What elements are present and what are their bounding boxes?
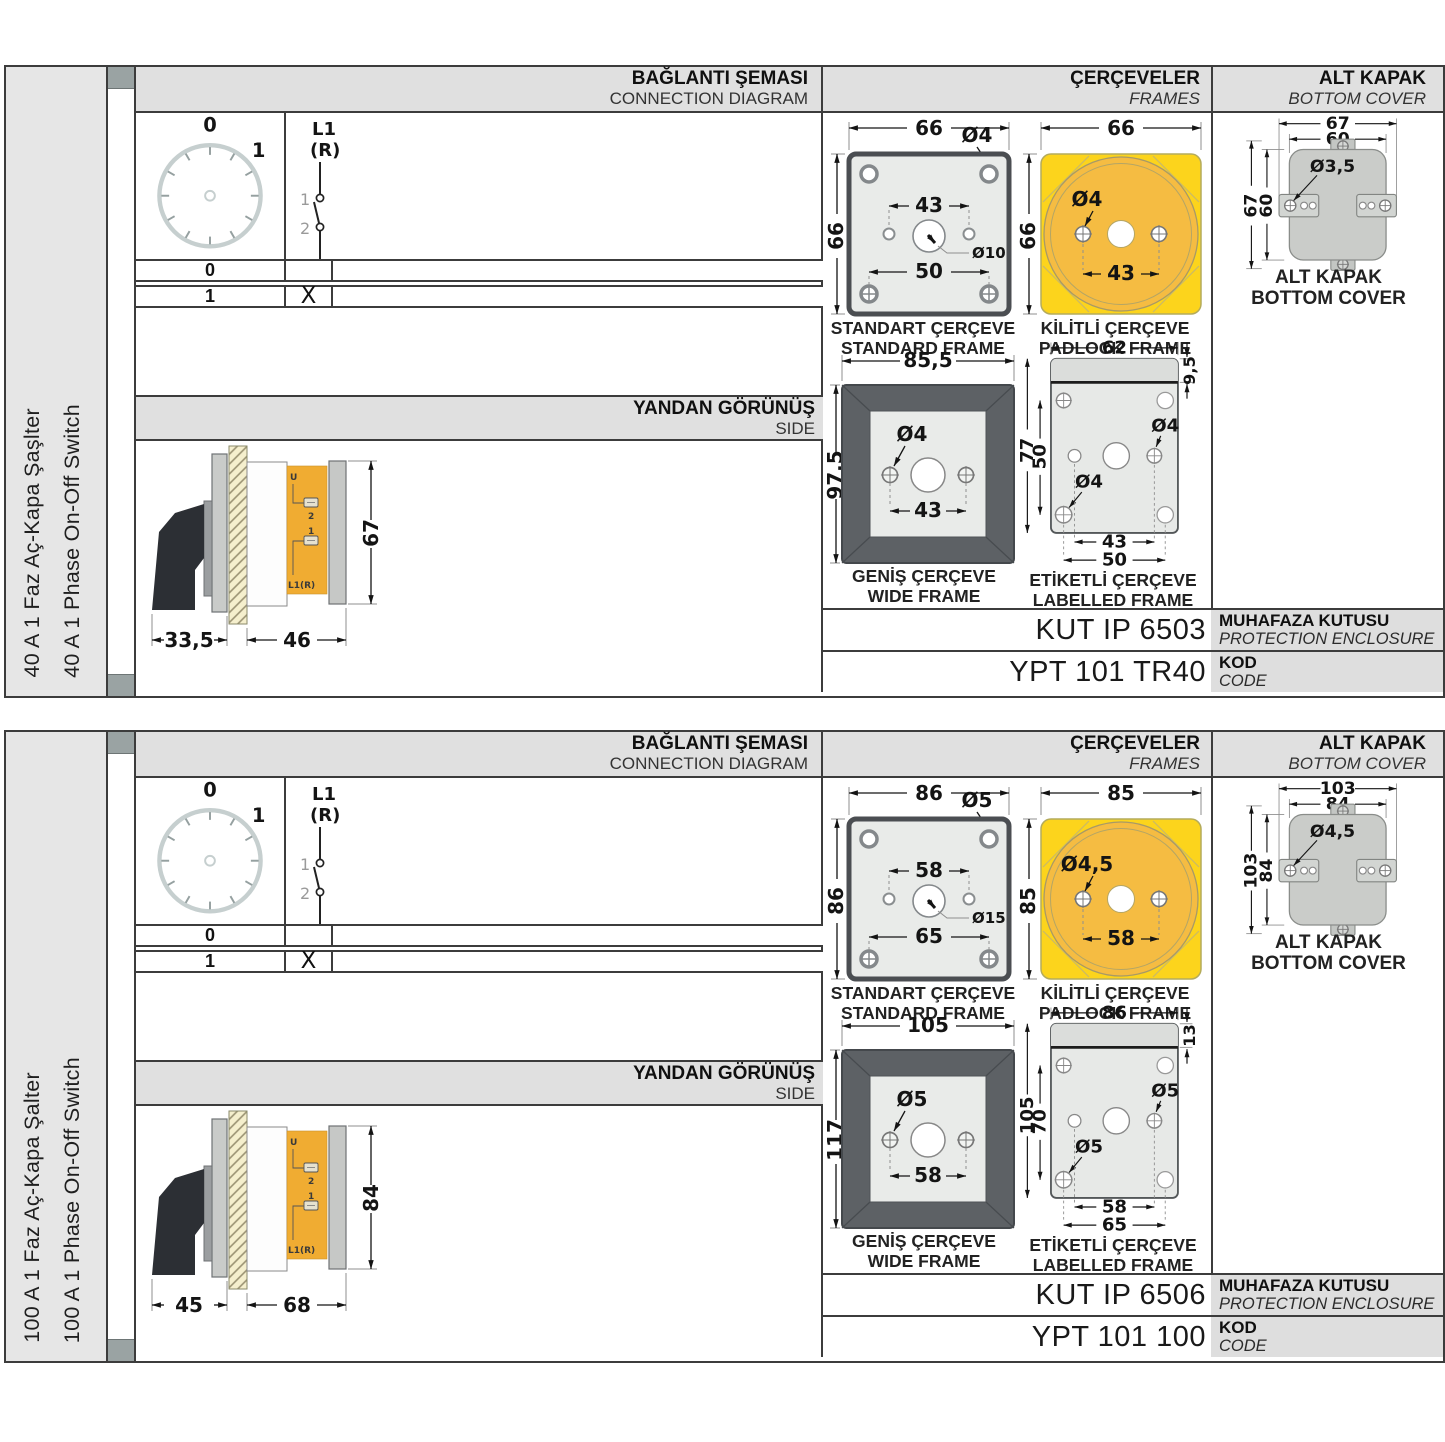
label-u: U bbox=[290, 1138, 297, 1148]
enclosure-code: KUT IP 6506 bbox=[823, 1273, 1211, 1315]
end-cap bbox=[329, 461, 346, 604]
bottom-cover-caption: ALT KAPAK BOTTOM COVER bbox=[1216, 267, 1441, 310]
header-connection-diagram-en: CONNECTION DIAGRAM bbox=[136, 755, 808, 774]
switch-dial-cell: 0 1 bbox=[136, 778, 286, 924]
terminal-r-label: (R) bbox=[310, 140, 340, 161]
dim-hole-right: Ø4 bbox=[1151, 415, 1179, 436]
product-label-strip: 100 A 1 Faz Aç-Kapa Şalter 100 A 1 Phase… bbox=[6, 732, 106, 1361]
side-view-title-en: SIDE bbox=[136, 1085, 815, 1104]
terminal-l1-label: L1 bbox=[312, 119, 336, 140]
product-name-turkish: 100 A 1 Faz Aç-Kapa Şalter bbox=[20, 1072, 45, 1343]
dial-position-1: 1 bbox=[252, 139, 266, 162]
dim-width: 85,5 bbox=[903, 349, 952, 372]
side-view-title-tr: YANDAN GÖRÜNÜŞ bbox=[136, 399, 815, 420]
dim-screw-pitch: 50 bbox=[1102, 550, 1127, 571]
header-connection-diagram: BAĞLANTI ŞEMASI CONNECTION DIAGRAM bbox=[136, 69, 816, 109]
dim-screw-pitch: 50 bbox=[915, 259, 943, 283]
position-cell: 1 bbox=[136, 952, 284, 971]
front-plate bbox=[212, 454, 227, 612]
dim-hole: Ø5 bbox=[897, 1087, 928, 1111]
switch-body bbox=[247, 1127, 287, 1271]
dim-body-depth: 46 bbox=[283, 628, 311, 652]
enclosure-label: MUHAFAZA KUTUSU PROTECTION ENCLOSURE bbox=[1211, 1273, 1443, 1315]
binding-gap-column bbox=[106, 732, 136, 1361]
registration-mark-bottom bbox=[108, 674, 134, 696]
dim-hole: Ø3,5 bbox=[1310, 157, 1355, 177]
dim-height: 85 bbox=[1019, 887, 1040, 915]
label-2: 2 bbox=[308, 1177, 314, 1187]
product-name-turkish: 40 A 1 Faz Aç-Kapa Şaşlter bbox=[20, 408, 45, 678]
switch-schematic: L1 (R) 1 2 U bbox=[290, 115, 380, 283]
dim-inner-height: 50 bbox=[1030, 444, 1051, 469]
label-2: 2 bbox=[308, 512, 314, 522]
dim-width: 62 bbox=[1102, 337, 1127, 358]
header-frames-tr: ÇERÇEVELER bbox=[826, 734, 1200, 755]
terminal-r-label: (R) bbox=[310, 805, 340, 826]
dim-hole: Ø4 bbox=[962, 123, 993, 147]
switch-handle bbox=[152, 1169, 204, 1275]
bottom-cover-caption: ALT KAPAK BOTTOM COVER bbox=[1216, 932, 1441, 975]
divider-cover bbox=[1211, 732, 1213, 1357]
switch-dial-drawing: 0 1 bbox=[138, 114, 282, 258]
header-bottom-cover-tr: ALT KAPAK bbox=[1216, 69, 1426, 90]
handle-hub bbox=[204, 1166, 212, 1261]
switch-body bbox=[247, 462, 287, 606]
dim-inner-height: 60 bbox=[1257, 194, 1277, 218]
label-l1r: L1(R) bbox=[288, 1246, 315, 1256]
position-cell: 1 bbox=[136, 287, 284, 306]
dim-hole-left: Ø5 bbox=[1075, 1137, 1103, 1158]
labelled-frame-caption: ETİKETLİ ÇERÇEVE LABELLED FRAME bbox=[1018, 571, 1208, 610]
enclosure-code: KUT IP 6503 bbox=[823, 608, 1211, 650]
dim-hole-pitch: 58 bbox=[1107, 926, 1135, 950]
product-panel: 40 A 1 Faz Aç-Kapa Şaşlter 40 A 1 Phase … bbox=[4, 65, 1445, 698]
contact-1-label: 1 bbox=[300, 190, 310, 209]
dim-hole: Ø4,5 bbox=[1061, 852, 1113, 876]
padlock-frame-drawing: 66 66 Ø4 43 bbox=[1019, 114, 1211, 322]
dim-width: 105 bbox=[907, 1014, 949, 1037]
table-row: 1 X bbox=[136, 285, 823, 308]
product-name-english: 100 A 1 Phase On-Off Switch bbox=[60, 1057, 85, 1343]
dim-screw-pitch: 65 bbox=[1102, 1215, 1127, 1236]
dim-screw-pitch: 65 bbox=[915, 924, 943, 948]
wide-frame-caption: GENİŞ ÇERÇEVE WIDE FRAME bbox=[826, 567, 1022, 606]
section-header-band: BAĞLANTI ŞEMASI CONNECTION DIAGRAM ÇERÇE… bbox=[136, 67, 1443, 113]
end-cap bbox=[329, 1126, 346, 1269]
dim-center-hole: Ø15 bbox=[972, 909, 1006, 927]
handle-hub bbox=[204, 501, 212, 596]
header-bottom-cover-en: BOTTOM COVER bbox=[1216, 90, 1426, 109]
dim-center-hole: Ø10 bbox=[972, 244, 1006, 262]
dim-width: 86 bbox=[915, 781, 943, 805]
dim-height: 66 bbox=[1019, 222, 1040, 250]
state-cell bbox=[284, 259, 333, 282]
label-strip bbox=[1051, 359, 1178, 383]
dim-hole: Ø5 bbox=[962, 788, 993, 812]
header-frames-en: FRAMES bbox=[826, 755, 1200, 774]
label-l1r: L1(R) bbox=[288, 581, 315, 591]
position-cell: 0 bbox=[136, 261, 284, 280]
contact-2-label: 2 bbox=[300, 219, 310, 238]
header-bottom-cover: ALT KAPAK BOTTOM COVER bbox=[1216, 734, 1434, 774]
dial-position-0: 0 bbox=[203, 779, 217, 802]
side-view-drawing: U 2 1 L1(R) 45 68 84 bbox=[149, 1109, 401, 1327]
dial-position-1: 1 bbox=[252, 804, 266, 827]
dim-hole-left: Ø4 bbox=[1075, 472, 1103, 493]
standard-frame-drawing: 86 Ø5 86 58 Ø15 65 bbox=[827, 779, 1019, 987]
header-frames: ÇERÇEVELER FRAMES bbox=[826, 69, 1208, 109]
dim-hole-pitch: 43 bbox=[915, 193, 943, 217]
product-code: YPT 101 TR40 bbox=[823, 650, 1211, 692]
header-connection-diagram: BAĞLANTI ŞEMASI CONNECTION DIAGRAM bbox=[136, 734, 816, 774]
dim-hole-pitch: 58 bbox=[915, 858, 943, 882]
dim-hole-right: Ø5 bbox=[1151, 1080, 1179, 1101]
dim-hole-pitch: 58 bbox=[914, 1163, 942, 1187]
divider-frames bbox=[821, 67, 823, 692]
switch-handle bbox=[152, 504, 204, 610]
table-row: 1 X bbox=[136, 950, 823, 973]
divider-cover bbox=[1211, 67, 1213, 692]
binding-gap-column bbox=[106, 67, 136, 696]
dim-hole: Ø4,5 bbox=[1310, 822, 1355, 842]
dim-body-depth: 68 bbox=[283, 1293, 311, 1317]
registration-mark-bottom bbox=[108, 1339, 134, 1361]
labelled-frame-drawing: 62 9,5 77 50 Ø4 Ø4 43 bbox=[1018, 337, 1200, 571]
header-connection-diagram-en: CONNECTION DIAGRAM bbox=[136, 90, 808, 109]
label-1: 1 bbox=[308, 527, 314, 537]
table-row: 0 bbox=[136, 924, 823, 947]
header-connection-diagram-tr: BAĞLANTI ŞEMASI bbox=[136, 734, 808, 755]
header-frames: ÇERÇEVELER FRAMES bbox=[826, 734, 1208, 774]
standard-frame-drawing: 66 Ø4 66 43 Ø10 50 bbox=[827, 114, 1019, 322]
code-label: KOD CODE bbox=[1211, 1315, 1443, 1357]
dim-width: 66 bbox=[1107, 116, 1135, 140]
side-view-drawing: U 2 1 L1(R) 33,5 46 67 bbox=[149, 444, 401, 662]
dim-inner-height: 70 bbox=[1030, 1109, 1051, 1134]
catalog-page: 40 A 1 Faz Aç-Kapa Şaşlter 40 A 1 Phase … bbox=[0, 0, 1445, 1442]
divider-frames bbox=[821, 732, 823, 1357]
mounting-panel-hatch bbox=[229, 1111, 247, 1289]
dial-position-0: 0 bbox=[203, 114, 217, 137]
dim-width: 66 bbox=[915, 116, 943, 140]
side-view-header: YANDAN GÖRÜNÜŞ SIDE bbox=[136, 395, 823, 441]
switch-schematic: L1 (R) 1 2 U bbox=[290, 780, 380, 948]
product-panel: 100 A 1 Faz Aç-Kapa Şalter 100 A 1 Phase… bbox=[4, 730, 1445, 1363]
state-cell bbox=[284, 924, 333, 947]
dim-hole-pitch: 43 bbox=[914, 498, 942, 522]
product-code: YPT 101 100 bbox=[823, 1315, 1211, 1357]
dim-hole: Ø4 bbox=[1072, 187, 1103, 211]
wide-frame-caption: GENİŞ ÇERÇEVE WIDE FRAME bbox=[826, 1232, 1022, 1271]
dim-height: 86 bbox=[827, 887, 848, 915]
product-label-strip: 40 A 1 Faz Aç-Kapa Şaşlter 40 A 1 Phase … bbox=[6, 67, 106, 696]
label-u: U bbox=[290, 473, 297, 483]
front-plate bbox=[212, 1119, 227, 1277]
dim-strip-height: 13 bbox=[1180, 1024, 1199, 1047]
side-view-title-tr: YANDAN GÖRÜNÜŞ bbox=[136, 1064, 815, 1085]
section-header-band: BAĞLANTI ŞEMASI CONNECTION DIAGRAM ÇERÇE… bbox=[136, 732, 1443, 778]
header-bottom-cover-en: BOTTOM COVER bbox=[1216, 755, 1426, 774]
dim-strip-height: 9,5 bbox=[1180, 356, 1199, 385]
table-row: 0 bbox=[136, 259, 823, 282]
dim-handle-depth: 33,5 bbox=[164, 628, 213, 652]
dim-body-height: 84 bbox=[359, 1184, 383, 1212]
switch-dial-drawing: 0 1 bbox=[138, 779, 282, 923]
header-bottom-cover-tr: ALT KAPAK bbox=[1216, 734, 1426, 755]
registration-mark-top bbox=[108, 732, 134, 754]
product-name-english: 40 A 1 Phase On-Off Switch bbox=[60, 404, 85, 678]
state-cell: X bbox=[284, 950, 333, 973]
dim-handle-depth: 45 bbox=[175, 1293, 203, 1317]
side-view-header: YANDAN GÖRÜNÜŞ SIDE bbox=[136, 1060, 823, 1106]
contact-2-label: 2 bbox=[300, 884, 310, 903]
header-frames-tr: ÇERÇEVELER bbox=[826, 69, 1200, 90]
label-strip bbox=[1051, 1024, 1178, 1048]
wide-frame-drawing: 105 117 Ø5 58 bbox=[826, 1014, 1022, 1232]
header-frames-en: FRAMES bbox=[826, 90, 1200, 109]
position-cell: 0 bbox=[136, 926, 284, 945]
header-connection-diagram-tr: BAĞLANTI ŞEMASI bbox=[136, 69, 808, 90]
dim-hole: Ø4 bbox=[897, 422, 928, 446]
switch-dial-cell: 0 1 bbox=[136, 113, 286, 259]
wide-frame-drawing: 85,5 97,5 Ø4 43 bbox=[826, 349, 1022, 567]
dim-inner-height: 84 bbox=[1257, 859, 1277, 883]
header-bottom-cover: ALT KAPAK BOTTOM COVER bbox=[1216, 69, 1434, 109]
label-1: 1 bbox=[308, 1192, 314, 1202]
dim-width: 86 bbox=[1102, 1002, 1127, 1023]
labelled-frame-caption: ETİKETLİ ÇERÇEVE LABELLED FRAME bbox=[1018, 1236, 1208, 1275]
dim-width: 85 bbox=[1107, 781, 1135, 805]
padlock-frame-drawing: 85 85 Ø4,5 58 bbox=[1019, 779, 1211, 987]
side-view-title-en: SIDE bbox=[136, 420, 815, 439]
dim-body-height: 67 bbox=[359, 519, 383, 547]
code-label: KOD CODE bbox=[1211, 650, 1443, 692]
dim-height: 66 bbox=[827, 222, 848, 250]
labelled-frame-drawing: 86 13 105 70 Ø5 Ø5 58 bbox=[1018, 1002, 1200, 1236]
bottom-cover-drawing: 67 60 67 60 Ø3,5 bbox=[1241, 115, 1431, 279]
registration-mark-top bbox=[108, 67, 134, 89]
terminal-l1-label: L1 bbox=[312, 784, 336, 805]
enclosure-label: MUHAFAZA KUTUSU PROTECTION ENCLOSURE bbox=[1211, 608, 1443, 650]
contact-1-label: 1 bbox=[300, 855, 310, 874]
state-cell: X bbox=[284, 285, 333, 308]
bottom-cover-drawing: 103 84 103 84 Ø4,5 bbox=[1241, 780, 1431, 944]
dim-hole-pitch: 43 bbox=[1107, 261, 1135, 285]
mounting-panel-hatch bbox=[229, 446, 247, 624]
